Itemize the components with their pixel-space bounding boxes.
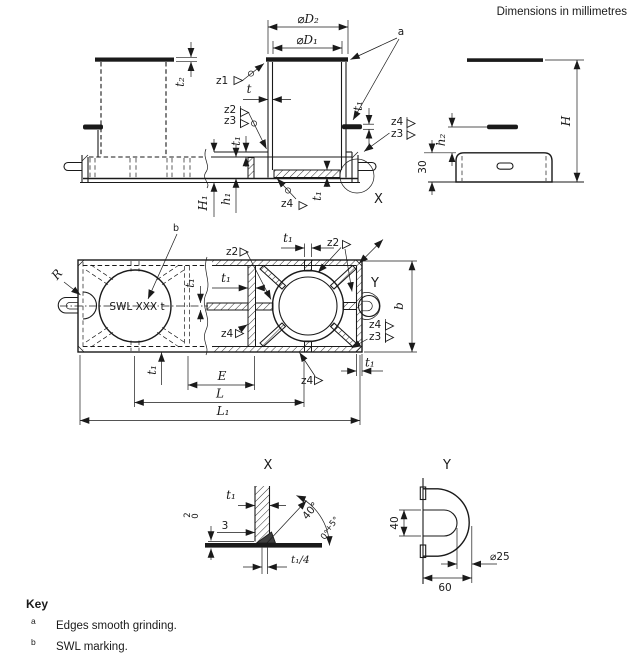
detail-y: Y 40 ⌀25 60	[389, 458, 510, 594]
detail-y-ref: Y	[370, 276, 379, 291]
left-bollard-horn	[83, 125, 103, 130]
base-right-eye	[358, 163, 376, 171]
dim-h1-total: H₁	[196, 195, 210, 211]
dim-t1-topplate: t₁	[229, 136, 243, 146]
dim-t: t	[247, 82, 252, 96]
detail-x-title: X	[264, 458, 273, 473]
eye-rib	[343, 303, 357, 310]
right-bollard-cap	[266, 57, 348, 61]
dim-t1-hrib: t₁	[183, 278, 197, 288]
base-plate-section	[205, 543, 322, 548]
gusset-ne	[331, 266, 357, 290]
technical-drawing-page: Dimensions in millimetres	[0, 0, 636, 656]
tab-edge	[487, 125, 518, 130]
weld-z1: z1	[216, 75, 228, 87]
base-left-eye	[64, 163, 82, 171]
front-elevation-view: X ⌀D₂ ⌀D₁ a t₂ z1 t z2 z3	[64, 12, 415, 217]
units-note: Dimensions in millimetres	[497, 6, 628, 18]
cap-edge	[467, 58, 543, 62]
base-hidden-ribs	[90, 158, 190, 178]
dim-3: 3	[222, 520, 229, 532]
dim-r: R	[48, 266, 65, 283]
weld-z4-mid: z4	[221, 328, 234, 340]
plan-left-eye	[58, 298, 78, 314]
weld-z3-plan: z3	[369, 331, 381, 343]
eye-boss-arc	[83, 292, 97, 319]
detail-x-marker	[340, 159, 374, 193]
gusset-sw	[260, 323, 286, 347]
callout-a: a	[398, 26, 404, 38]
eye-outer-profile	[423, 489, 469, 556]
dim-t1-over-4: t₁/4	[291, 554, 310, 566]
key-ref-a: a	[31, 616, 36, 626]
dim-t1-band: t₁	[365, 356, 375, 370]
dim-t1-tab: t₁	[351, 101, 365, 111]
bollard-drawing: Dimensions in millimetres	[0, 0, 636, 656]
base-rib-section	[248, 158, 254, 179]
dim-60: 60	[438, 582, 451, 594]
callout-b: b	[173, 223, 179, 234]
key-item-b: SWL marking.	[56, 641, 128, 653]
detail-x-ref: X	[374, 192, 383, 207]
dim-30: 30	[417, 160, 429, 173]
plan-view: SWL XXX t R b Y z2	[48, 223, 417, 425]
horizontal-rib-right	[256, 303, 274, 310]
detail-x: X t₁ 3 2 0 40° +5° 0° t₁/4	[183, 458, 342, 574]
weld-z4-bottom: z4	[281, 198, 294, 210]
dim-l1: L₁	[216, 404, 230, 418]
key-item-a: Edges smooth grinding.	[56, 620, 177, 632]
dim-t2: t₂	[173, 77, 187, 87]
weld-z4-plan: z4	[369, 319, 382, 331]
dim-l: L	[215, 387, 224, 401]
dim-dia-d1: ⌀D₁	[296, 33, 318, 47]
bracket-slot	[497, 163, 513, 169]
bollard-bottom-plate	[274, 170, 340, 178]
gap-lower: 0	[191, 513, 201, 518]
key-block: Key a Edges smooth grinding. b SWL marki…	[26, 597, 177, 653]
weld-z4: z4	[391, 116, 404, 128]
dim-t1-plate: t₁	[310, 191, 324, 201]
vertical-rib	[248, 266, 256, 347]
dim-e: E	[217, 369, 227, 383]
weld-z4-stub: z4	[301, 375, 314, 387]
dim-h: H	[559, 115, 573, 127]
key-ref-b: b	[31, 637, 36, 647]
dim-t1-bottom: t₁	[145, 365, 159, 375]
angle-40: 40°	[300, 500, 321, 522]
dim-dia-d2: ⌀D₂	[297, 12, 319, 26]
dim-h2: h₂	[434, 134, 448, 147]
dim-t1-vrib: t₁	[221, 271, 231, 285]
dim-t1-stub: t₁	[283, 231, 293, 245]
left-bollard-cap	[95, 58, 174, 62]
gusset-se	[331, 323, 357, 347]
weld-z3: z3	[224, 115, 236, 127]
dim-dia-25: ⌀25	[490, 551, 510, 563]
right-bollard-tab	[342, 124, 362, 129]
side-view: H h₂ 30	[417, 58, 584, 195]
dim-h1-inner: h₁	[219, 193, 233, 206]
dim-40: 40	[389, 516, 401, 529]
horizontal-rib-left	[207, 303, 248, 310]
weld-flag-icon	[234, 77, 243, 85]
detail-y-title: Y	[442, 458, 451, 473]
eye-inner-profile	[423, 510, 457, 536]
swl-marking-text: SWL XXX t	[109, 301, 164, 313]
base-bracket	[456, 153, 552, 182]
dim-b: b	[392, 302, 406, 310]
weld-z2-plan1: z2	[226, 246, 238, 258]
weld-z2-plan2: z2	[327, 237, 339, 249]
dim-t1-detail: t₁	[226, 488, 236, 502]
weld-z3b: z3	[391, 128, 403, 140]
key-title: Key	[26, 597, 48, 611]
right-bollard-ring	[273, 271, 344, 342]
